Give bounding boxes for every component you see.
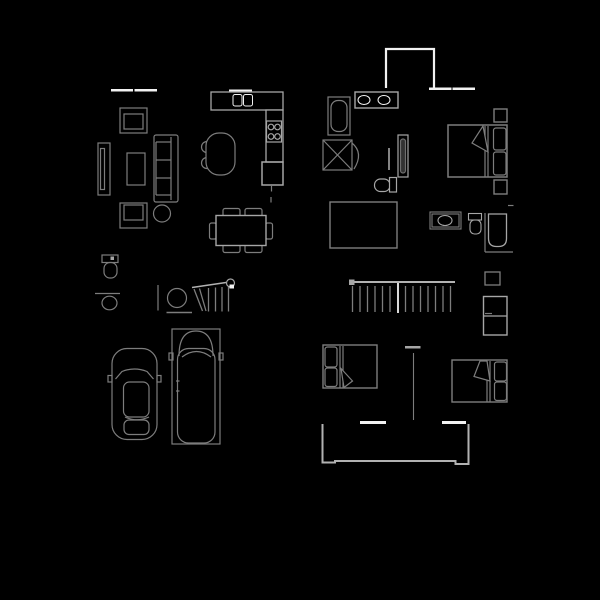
bed-master <box>448 125 507 177</box>
toilet-main-shape <box>390 178 397 193</box>
toilet-2-shape <box>469 214 482 221</box>
coffee-table <box>127 153 145 185</box>
stairs-winder-shape <box>192 283 226 288</box>
bed-3-shape <box>474 361 490 381</box>
side-table-round-shape <box>154 205 171 222</box>
powder-toilet-shape <box>102 255 118 263</box>
laundry-cabinet-shape <box>485 272 500 285</box>
shower <box>323 140 359 170</box>
bed-2-shape <box>325 368 337 387</box>
car-sedan-shape <box>116 369 154 379</box>
sofa-shape <box>154 135 178 202</box>
car-sedan-shape <box>108 376 112 383</box>
nightstand-top-shape <box>494 109 507 122</box>
hall-wall <box>405 346 421 420</box>
bed-2-shape <box>325 347 337 367</box>
stairs-main-shape <box>349 280 355 286</box>
closet-island <box>330 202 397 248</box>
bathtub-main <box>328 97 350 135</box>
laundry-cabinet <box>485 272 500 285</box>
bath1-vanity-double <box>355 92 398 108</box>
powder-toilet <box>102 255 118 278</box>
floor-plan <box>0 0 600 600</box>
car-van-shape <box>179 331 213 356</box>
bed-master-shape <box>494 152 507 175</box>
shower-shape <box>352 143 359 169</box>
pedestal-sink <box>95 294 120 310</box>
bath2-vanity-shape <box>430 212 461 229</box>
car-sedan-shape <box>124 382 150 417</box>
dining-set <box>210 209 273 253</box>
breakfast-table-set <box>202 133 236 175</box>
bath2-vanity-shape <box>438 216 452 226</box>
dining-set-shape <box>216 216 266 246</box>
linen-cabinet <box>398 135 408 177</box>
bath2-vanity <box>430 212 461 229</box>
corner-basin <box>158 285 192 313</box>
closet-island-shape <box>330 202 397 248</box>
bathtub-2 <box>489 214 507 247</box>
tv-console-shape <box>101 149 105 190</box>
car-sedan <box>108 349 161 440</box>
armchair-bottom-shape <box>124 205 143 220</box>
wall-window-top-left-shape <box>111 89 133 92</box>
wall-porch-left-shape <box>360 421 386 424</box>
pedestal-sink-shape <box>102 296 117 310</box>
bath1-vanity-double-shape <box>355 92 398 108</box>
nightstand-bottom <box>494 180 507 194</box>
toilet-main <box>375 178 397 193</box>
wall-window-top-right-shape <box>453 88 476 91</box>
armchair-top <box>120 108 147 133</box>
wall-entry-bumpout-shape <box>386 49 434 88</box>
wall-window-top-right-shape <box>429 88 452 91</box>
bed-3-shape <box>495 362 507 381</box>
floor-plan-page <box>0 0 600 600</box>
wall-window-top-right <box>429 88 475 91</box>
hall-wall-shape <box>405 346 421 349</box>
refrigerator-shape <box>262 162 283 185</box>
bed-3 <box>452 360 507 402</box>
linen-cabinet-shape <box>401 139 406 173</box>
stairs-winder-shape <box>230 285 235 289</box>
wall-window-top-left <box>111 89 157 92</box>
powder-toilet-shape <box>111 257 115 261</box>
wall-window-top-left-shape <box>135 89 158 92</box>
car-van-shape <box>182 352 211 358</box>
coffee-table-shape <box>127 153 145 185</box>
bed-2 <box>323 345 377 388</box>
car-sedan-shape <box>124 420 149 435</box>
toilet-2 <box>469 214 482 235</box>
stairs-winder <box>192 279 235 312</box>
bathtub-main-shape <box>331 101 347 132</box>
tv-console <box>98 143 110 195</box>
wall-porch-left <box>360 421 386 424</box>
side-table-round <box>154 205 171 222</box>
nightstand-bottom-shape <box>494 180 507 194</box>
porch-outline-shape <box>323 424 469 464</box>
armchair-bottom <box>120 203 147 228</box>
bed-3-shape <box>495 382 507 401</box>
car-van-shape <box>178 349 216 444</box>
bed-master-shape <box>448 125 507 177</box>
toilet-main-shape <box>375 179 391 192</box>
bathtub-2-shape <box>489 214 507 247</box>
powder-toilet-shape <box>104 263 117 279</box>
bed-master-shape <box>494 128 507 150</box>
porch-outline <box>323 424 469 464</box>
stairs-main <box>349 280 455 314</box>
toilet-2-shape <box>470 220 481 234</box>
refrigerator <box>262 162 283 192</box>
wall-porch-right-shape <box>442 421 466 424</box>
car-sedan-shape <box>112 349 157 440</box>
nightstand-top <box>494 109 507 122</box>
wall-porch-right <box>442 421 466 424</box>
stairs-winder-shape <box>200 289 207 312</box>
armchair-top-shape <box>124 114 143 129</box>
wall-entry-bumpout <box>386 49 434 88</box>
sofa <box>154 135 178 202</box>
corner-basin-shape <box>168 289 187 308</box>
car-van <box>169 329 223 444</box>
washer-dryer-stack <box>484 297 508 336</box>
breakfast-table-set-shape <box>206 133 235 175</box>
